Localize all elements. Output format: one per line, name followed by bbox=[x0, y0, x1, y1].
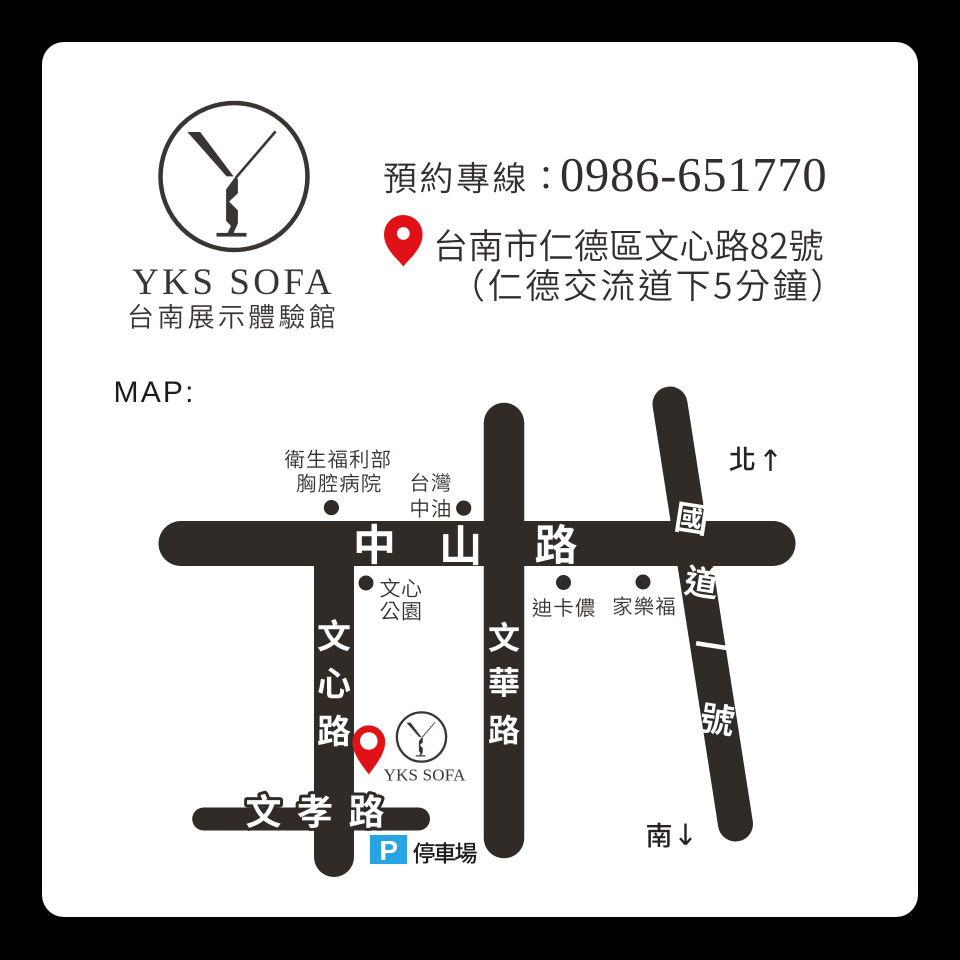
svg-text:0986-651770: 0986-651770 bbox=[560, 149, 827, 202]
svg-text:MAP:: MAP: bbox=[114, 376, 196, 409]
svg-text:YKS SOFA: YKS SOFA bbox=[384, 765, 467, 784]
svg-text:YKS SOFA: YKS SOFA bbox=[132, 262, 335, 303]
svg-text:P: P bbox=[379, 835, 398, 866]
